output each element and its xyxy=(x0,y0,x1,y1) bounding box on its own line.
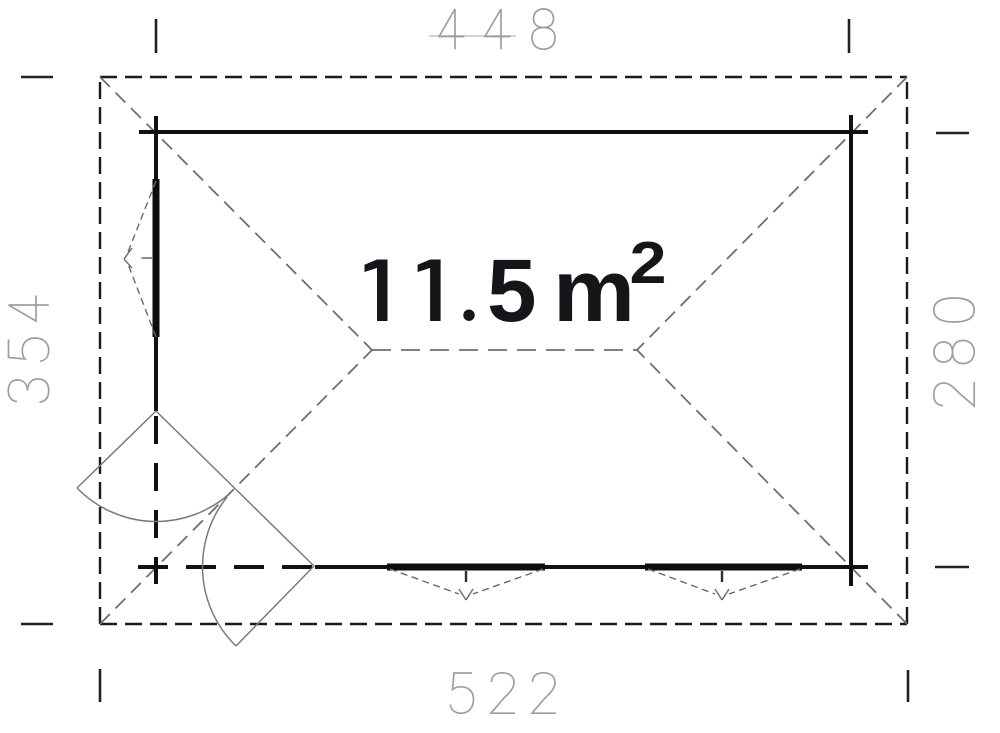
svg-text:5: 5 xyxy=(487,240,537,340)
svg-text:2: 2 xyxy=(630,230,667,296)
svg-text:m: m xyxy=(553,241,635,340)
